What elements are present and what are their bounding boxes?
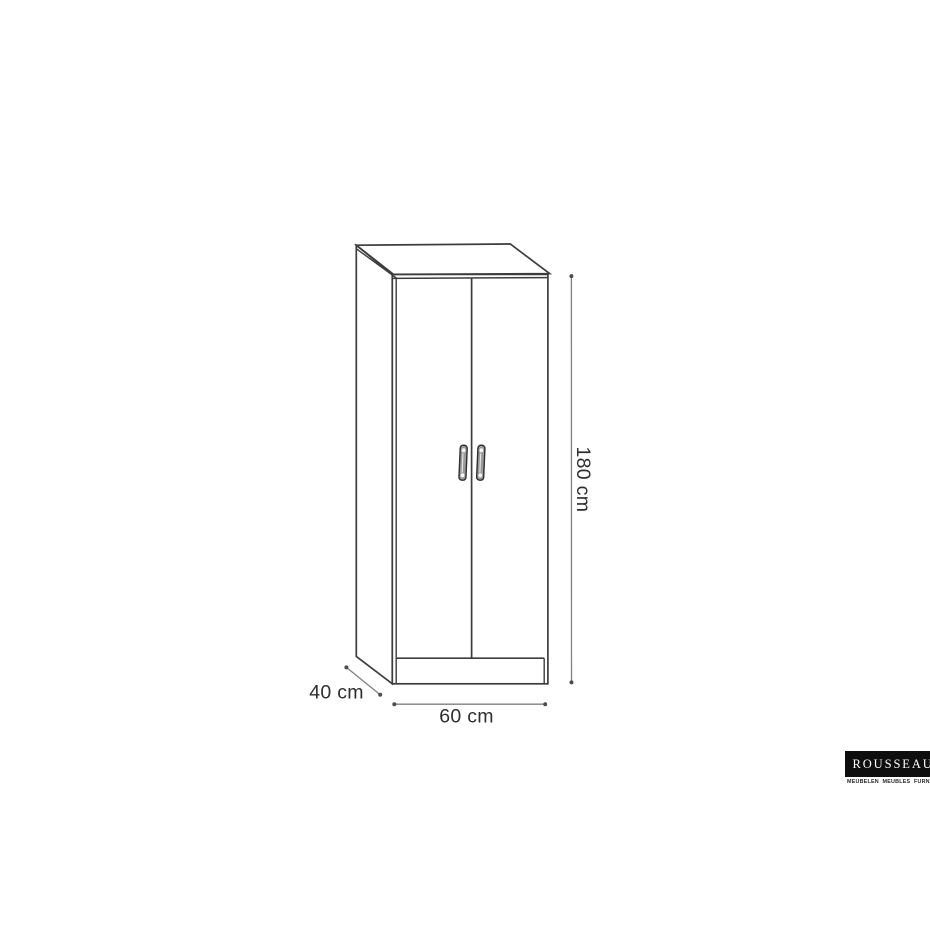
svg-text:40 cm: 40 cm xyxy=(309,682,364,704)
svg-text:60 cm: 60 cm xyxy=(439,706,494,728)
svg-text:180 cm: 180 cm xyxy=(572,447,594,513)
